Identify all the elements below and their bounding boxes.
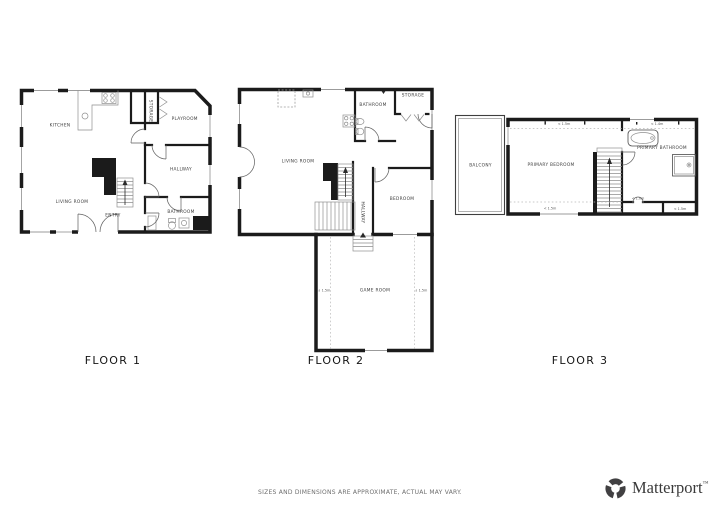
floorplan-page: KITCHEN STORAGE PLAYROOM HALLWAY LIVING … <box>0 0 720 508</box>
floor2-label: FLOOR 2 <box>256 354 416 367</box>
shower-icon <box>193 216 209 230</box>
floor2-windows <box>237 87 435 353</box>
room-label-storage: STORAGE <box>402 93 425 99</box>
dim-label-top-right: < 1.4m <box>651 122 664 126</box>
room-label-playroom: PLAYROOM <box>172 116 198 122</box>
shower-head-icon <box>382 91 386 94</box>
room-label-kitchen: KITCHEN <box>50 123 71 129</box>
dim-label-game-left: ↓ 1.5m <box>318 289 331 293</box>
room-label-primary-bathroom: PRIMARY BATHROOM <box>637 145 687 151</box>
dim-label-bottom-center: < 1.0m <box>632 197 645 201</box>
floor1-kitchen-counter-icon <box>78 91 118 131</box>
dim-label-bottom-left: < 1.5m <box>544 207 557 211</box>
sink-icon <box>356 119 364 125</box>
room-label-balcony: BALCONY <box>469 163 492 169</box>
wall-tick <box>584 121 585 124</box>
floor1-label: FLOOR 1 <box>33 354 193 367</box>
room-label-entry: ENTRY <box>105 213 120 219</box>
matterport-logo-icon <box>604 477 627 500</box>
bifold-door-icon <box>160 97 168 119</box>
floor3-room-labels: BALCONY PRIMARY BEDROOM PRIMARY BATHROOM… <box>469 122 687 211</box>
floor3-bathroom-fixtures <box>628 130 696 176</box>
fridge-icon <box>278 90 295 107</box>
floor1-plan: KITCHEN STORAGE PLAYROOM HALLWAY LIVING … <box>12 85 212 240</box>
matterport-logo: Matterport™ <box>604 477 708 500</box>
fireplace-icon <box>323 163 338 200</box>
matterport-wordmark: Matterport™ <box>632 480 708 497</box>
floor3-label: FLOOR 3 <box>500 354 660 367</box>
wall-tick <box>545 121 546 124</box>
floor2-plan: LIVING ROOM BATHROOM STORAGE BEDROOM HAL… <box>233 84 438 354</box>
room-label-living-room: LIVING ROOM <box>282 159 315 165</box>
room-label-bathroom: BATHROOM <box>167 209 194 215</box>
floor1-bathroom-fixtures <box>169 216 210 230</box>
sink-icon <box>179 218 189 228</box>
dim-label-top-center: < 1.5m <box>558 122 571 126</box>
room-label-primary-bedroom: PRIMARY BEDROOM <box>527 162 574 168</box>
bifold-door-icon <box>401 115 424 122</box>
floor3-stairs-icon <box>593 148 622 214</box>
floor2-kitchen-fixtures <box>278 90 355 127</box>
room-label-bedroom: BEDROOM <box>390 196 415 202</box>
sink-icon <box>82 113 88 119</box>
floor1-stairs-icon <box>117 178 133 207</box>
toilet-icon <box>356 128 364 135</box>
floor3-plan: BALCONY PRIMARY BEDROOM PRIMARY BATHROOM… <box>452 109 704 219</box>
dim-label-bottom-right: < 1.5m <box>674 207 687 211</box>
room-label-game-room: GAME ROOM <box>360 288 390 294</box>
floor1-room-labels: KITCHEN STORAGE PLAYROOM HALLWAY LIVING … <box>50 100 198 219</box>
room-label-living-room: LIVING ROOM <box>56 199 89 205</box>
disclaimer-text: SIZES AND DIMENSIONS ARE APPROXIMATE, AC… <box>110 489 610 496</box>
room-label-hallway: HALLWAY <box>170 167 192 173</box>
room-label-hallway: HALLWAY <box>360 202 366 224</box>
trademark-symbol: ™ <box>703 481 709 487</box>
room-label-bathroom: BATHROOM <box>359 102 386 108</box>
floor2-walls <box>240 90 433 351</box>
dim-label-game-right: ↓ 1.5m <box>415 289 428 293</box>
shower-icon <box>673 155 696 177</box>
room-label-storage: STORAGE <box>148 100 154 123</box>
wall-tick <box>678 121 679 124</box>
fireplace-icon <box>92 158 116 195</box>
